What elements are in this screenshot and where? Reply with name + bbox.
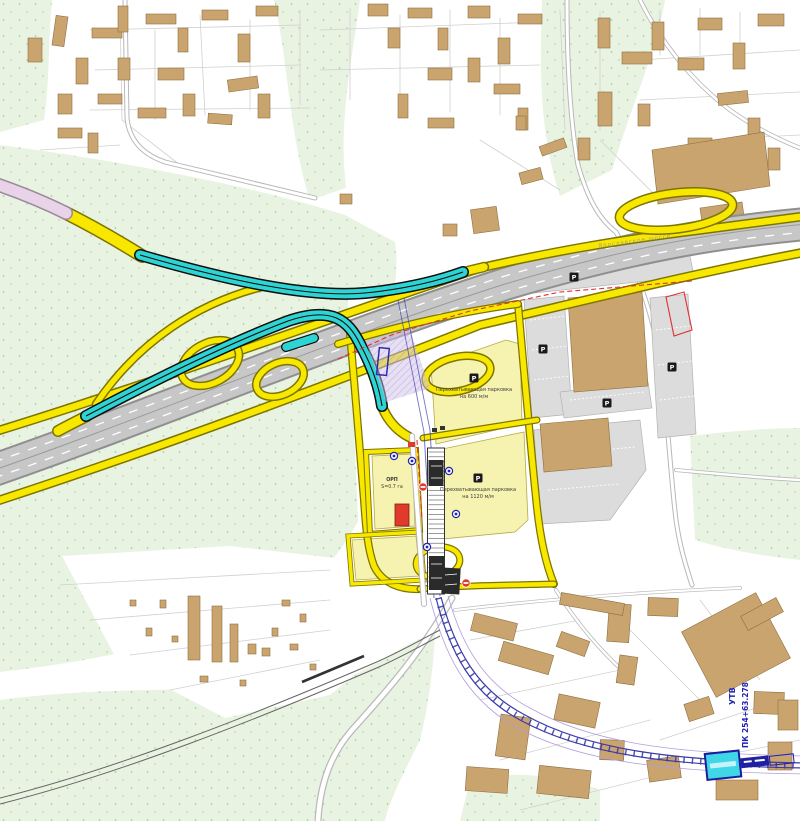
parking-lower-label-line2: на 1120 м/м <box>462 494 494 500</box>
building <box>340 194 352 204</box>
orp-label-line1: ОРП <box>386 477 398 483</box>
building <box>272 628 278 636</box>
building <box>98 94 122 104</box>
building <box>758 14 784 26</box>
building <box>138 108 166 118</box>
bus-stop-icon <box>408 457 415 464</box>
building <box>408 8 432 18</box>
terminal-building <box>441 568 460 595</box>
parking-icon: P <box>603 399 612 408</box>
building <box>300 614 306 622</box>
small-structure <box>440 426 445 430</box>
building <box>768 148 780 170</box>
building <box>118 6 128 32</box>
small-structure <box>432 428 437 432</box>
building <box>428 68 452 80</box>
building <box>438 28 448 50</box>
parking-icon-glyph: P <box>541 346 546 354</box>
building <box>58 94 72 114</box>
building <box>212 606 222 662</box>
parking-icon: P <box>668 363 677 372</box>
building <box>468 6 490 18</box>
planning-map: PPPPPP Перехватывающая парковка на 600 м… <box>0 0 800 821</box>
no-entry-icon <box>462 579 470 587</box>
utv-label: УТВ <box>728 687 737 705</box>
bus-stop-dot <box>411 460 414 463</box>
building <box>622 52 652 64</box>
red-building <box>395 504 409 526</box>
pk-chainage-label: ПК 254+63.278 <box>741 682 750 748</box>
building <box>172 636 178 642</box>
building <box>598 18 610 48</box>
building <box>495 714 531 760</box>
building <box>28 38 42 62</box>
building <box>516 116 526 130</box>
bus-stop-dot <box>393 455 396 458</box>
building <box>76 58 88 84</box>
bus-stop-icon <box>452 510 459 517</box>
building <box>494 84 520 94</box>
station-building <box>429 556 444 590</box>
building <box>398 94 408 118</box>
building <box>290 644 298 650</box>
parking-icon-glyph: P <box>605 400 610 408</box>
building <box>256 6 278 16</box>
parcel-line <box>200 15 205 115</box>
no-entry-bar <box>421 486 426 488</box>
south-parcel <box>352 536 420 580</box>
no-entry-bar <box>464 582 469 584</box>
building <box>368 4 388 16</box>
bus-stop-icon <box>423 543 430 550</box>
bus-stop-dot <box>426 546 429 549</box>
building <box>58 128 82 138</box>
mall-building <box>540 418 612 472</box>
station-building <box>429 460 444 486</box>
building <box>498 38 510 64</box>
building <box>248 644 256 654</box>
building <box>778 700 798 730</box>
parking-icon: P <box>470 374 479 383</box>
building <box>92 28 122 38</box>
building <box>202 10 228 20</box>
building <box>678 58 704 70</box>
building <box>698 18 722 30</box>
parcel-line <box>40 145 120 150</box>
building <box>733 43 745 69</box>
building <box>652 22 664 50</box>
building <box>638 104 650 126</box>
parking-icon-glyph: P <box>670 364 675 372</box>
building <box>146 14 176 24</box>
parking-icon-glyph: P <box>572 274 577 282</box>
building <box>227 76 258 92</box>
bus-stop-icon <box>445 467 452 474</box>
small-red-structure <box>408 442 415 447</box>
building <box>716 780 758 800</box>
orp-label-line2: S=0.7 га <box>381 484 403 490</box>
building <box>258 94 270 118</box>
parking-icon-glyph: P <box>476 475 481 483</box>
bus-stop-dot <box>448 470 451 473</box>
building <box>465 767 509 794</box>
building <box>240 680 246 686</box>
building <box>717 90 748 105</box>
parking-icon: P <box>570 273 579 282</box>
parking-lower-label-line1: Перехватывающая парковка <box>440 487 516 493</box>
bus-stop-icon <box>390 452 397 459</box>
building <box>518 14 542 24</box>
building <box>598 92 612 126</box>
building <box>208 113 233 125</box>
building <box>282 600 290 606</box>
building <box>183 94 195 116</box>
building <box>470 206 499 233</box>
building <box>188 596 200 660</box>
building <box>146 628 152 636</box>
building <box>52 15 68 46</box>
building <box>262 648 270 656</box>
bus-stop-dot <box>455 513 458 516</box>
building <box>578 138 590 160</box>
building <box>428 118 454 128</box>
parking-icon-glyph: P <box>472 375 477 383</box>
building <box>519 167 543 184</box>
map-canvas: PPPPPP Перехватывающая парковка на 600 м… <box>0 0 800 821</box>
building <box>88 133 98 153</box>
building <box>468 58 480 82</box>
parking-upper-label-line1: Перехватывающая парковка <box>436 387 512 393</box>
parking-icon: P <box>539 345 548 354</box>
building <box>388 28 400 48</box>
building <box>200 676 208 682</box>
building <box>118 58 130 80</box>
mall-building <box>568 292 648 392</box>
building <box>616 655 638 685</box>
building <box>178 28 188 52</box>
parking-upper-label-line2: на 600 м/м <box>460 394 489 400</box>
building <box>537 765 592 798</box>
building <box>160 600 166 608</box>
parcel-line <box>90 108 310 110</box>
building <box>443 224 457 236</box>
parcel-line <box>640 50 800 60</box>
building <box>648 597 679 616</box>
no-entry-icon <box>419 483 427 491</box>
building <box>158 68 184 80</box>
building <box>230 624 238 662</box>
building <box>130 600 136 606</box>
building <box>238 34 250 62</box>
parking-icon: P <box>474 474 483 483</box>
building <box>310 664 316 670</box>
